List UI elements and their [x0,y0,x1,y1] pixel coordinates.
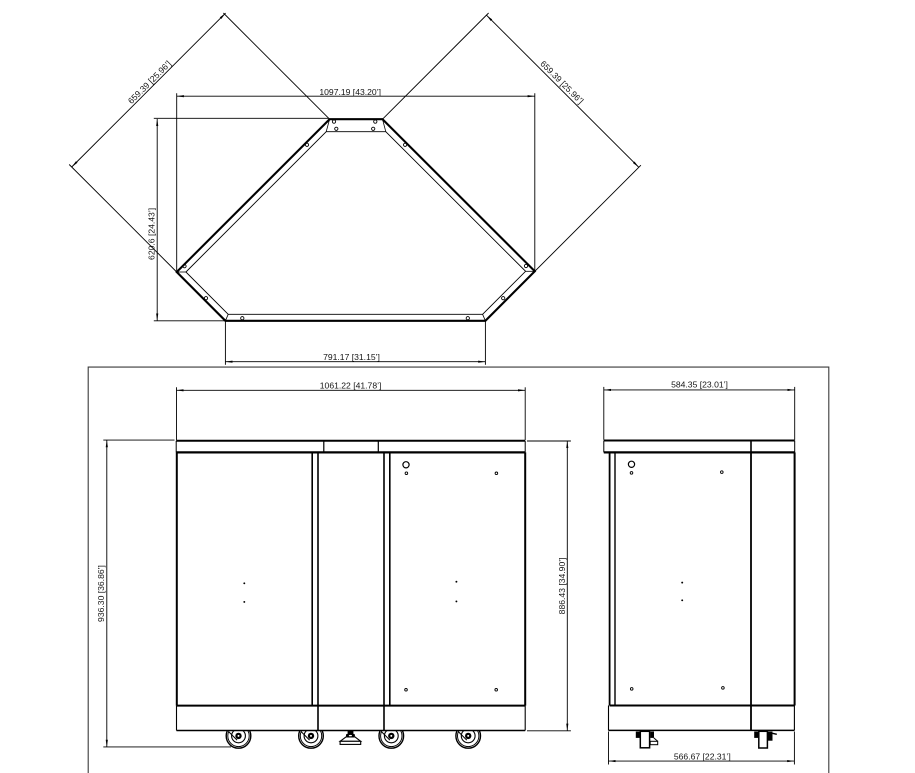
svg-text:620.6 [24.43’]: 620.6 [24.43’] [147,208,157,260]
svg-text:1061.22 [41.78’]: 1061.22 [41.78’] [320,380,382,390]
svg-text:886.43 [34.90’]: 886.43 [34.90’] [557,557,567,614]
svg-text:936.30 [36.86’]: 936.30 [36.86’] [96,565,106,622]
svg-text:584.35 [23.01’]: 584.35 [23.01’] [671,380,728,390]
svg-text:659.39 [25.96’]: 659.39 [25.96’] [538,59,585,106]
svg-text:659.39 [25.96’]: 659.39 [25.96’] [126,59,173,106]
svg-text:566.67 [22.31’]: 566.67 [22.31’] [674,752,731,762]
svg-text:1097.19 [43.20’]: 1097.19 [43.20’] [319,87,381,97]
svg-text:791.17 [31.15’]: 791.17 [31.15’] [323,352,380,362]
